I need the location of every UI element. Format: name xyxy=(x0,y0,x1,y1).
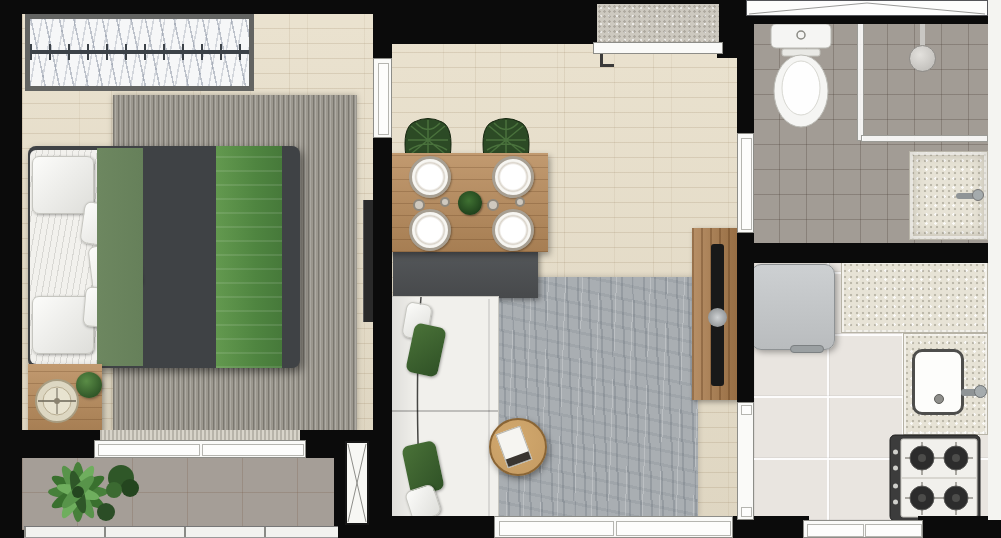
window-pane xyxy=(499,521,614,536)
stove-top xyxy=(889,434,981,522)
sideboard xyxy=(393,250,538,298)
plate xyxy=(409,156,451,198)
kitchen-counter-top xyxy=(841,261,988,333)
book-spine xyxy=(506,451,531,467)
window-pane xyxy=(865,524,922,537)
window-pane xyxy=(807,524,864,537)
bedroom-window xyxy=(94,440,306,458)
living-window xyxy=(494,516,733,538)
facade-edge-right xyxy=(988,0,1001,520)
bed-olive-blanket xyxy=(97,148,143,366)
cup xyxy=(515,197,525,207)
bedroom-door-leaf xyxy=(378,63,389,135)
kitchen-doorway-jamb xyxy=(741,405,752,415)
plate xyxy=(492,209,534,251)
wall-top-bedroom xyxy=(0,0,380,14)
refrigerator-handle xyxy=(790,345,824,353)
dining-chair xyxy=(477,116,535,158)
living-rug xyxy=(497,277,698,517)
kitchen-doorway xyxy=(737,402,754,520)
cup xyxy=(413,199,425,211)
tv-mount xyxy=(708,308,727,327)
shaft-column xyxy=(345,441,369,525)
coffee-table xyxy=(489,418,547,476)
wall-bath-kitchen xyxy=(737,243,1001,263)
wall-bottom-living xyxy=(378,516,500,538)
shower-head xyxy=(909,45,936,72)
vanity-faucet-knob xyxy=(972,189,984,201)
wall-top-living xyxy=(378,0,598,44)
cup xyxy=(440,197,450,207)
plate xyxy=(409,209,451,251)
round-tray xyxy=(34,378,80,424)
plate xyxy=(492,156,534,198)
balcony-plants xyxy=(26,450,146,535)
entry-threshold xyxy=(597,4,719,44)
dining-chair xyxy=(399,116,457,158)
window-pane xyxy=(616,521,731,536)
window-pane xyxy=(202,444,304,456)
bathroom-window-symbol xyxy=(746,0,988,16)
kitchen-sink xyxy=(912,349,964,415)
dining-table xyxy=(387,153,548,252)
entry-sill xyxy=(593,42,723,54)
entry-hinge-mark xyxy=(600,64,614,67)
bathroom-doorway xyxy=(737,133,754,233)
nightstand xyxy=(28,364,102,432)
hanger-hooks xyxy=(30,44,249,60)
toilet xyxy=(768,22,834,130)
sink-drain xyxy=(934,394,944,404)
wardrobe xyxy=(25,14,254,91)
wall-living-bath-upper xyxy=(737,50,754,137)
window-pane xyxy=(98,444,200,456)
sink-faucet-knob xyxy=(974,385,987,398)
bathroom-door-leaf xyxy=(741,138,752,230)
book xyxy=(496,426,533,469)
bedroom-doorway xyxy=(373,58,392,138)
bed-green-runner xyxy=(216,146,282,368)
floor-plan xyxy=(0,0,1001,538)
wall-left xyxy=(0,0,22,538)
balcony-railing xyxy=(24,526,338,538)
bedroom-window-sill xyxy=(100,430,300,440)
bathroom-vanity xyxy=(909,151,988,240)
refrigerator xyxy=(751,264,835,350)
kitchen-window xyxy=(803,520,923,538)
kitchen-doorway-jamb xyxy=(741,507,752,517)
potted-plant-small xyxy=(76,372,102,398)
double-bed xyxy=(28,146,300,368)
shower-glass-horizontal xyxy=(861,135,988,142)
cup xyxy=(487,199,499,211)
centerpiece-plant xyxy=(458,191,482,215)
wall-bedroom-living-upper xyxy=(373,14,392,62)
shower-glass-vertical xyxy=(857,22,864,141)
